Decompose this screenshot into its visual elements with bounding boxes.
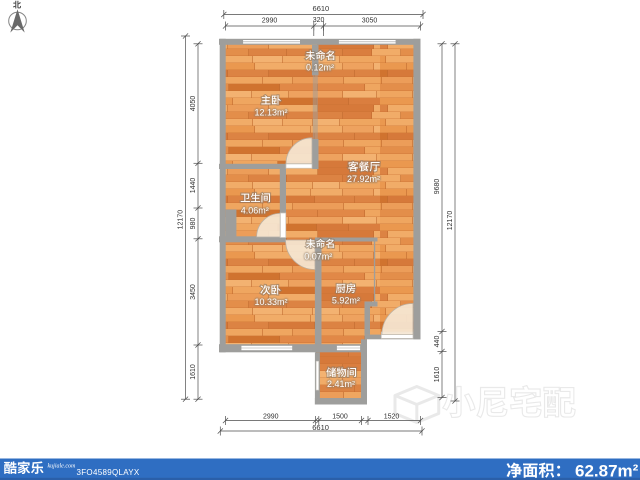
svg-text:1520: 1520 <box>384 414 400 421</box>
svg-text:980: 980 <box>190 218 197 230</box>
svg-text:10.33m²: 10.33m² <box>254 297 287 307</box>
svg-text:kujiale.com: kujiale.com <box>48 464 76 470</box>
svg-text:2.41m²: 2.41m² <box>327 379 355 389</box>
svg-text:3450: 3450 <box>190 284 197 300</box>
svg-text:6610: 6610 <box>313 4 330 13</box>
svg-text:4050: 4050 <box>190 96 197 112</box>
svg-text:1440: 1440 <box>190 178 197 194</box>
svg-text:9680: 9680 <box>434 179 441 195</box>
svg-text:2990: 2990 <box>263 414 279 421</box>
svg-text:12170: 12170 <box>178 210 185 230</box>
svg-text:12170: 12170 <box>447 211 454 231</box>
svg-text:62.87m²: 62.87m² <box>575 462 639 480</box>
svg-text:0.07m²: 0.07m² <box>304 252 332 262</box>
svg-text:440: 440 <box>434 336 441 348</box>
svg-text:12.13m²: 12.13m² <box>254 107 287 117</box>
svg-text:1500: 1500 <box>332 414 348 421</box>
svg-text:1610: 1610 <box>434 367 441 383</box>
svg-text:4.06m²: 4.06m² <box>241 206 269 216</box>
svg-text:320: 320 <box>313 17 325 24</box>
svg-text:3FO4589QLAYX: 3FO4589QLAYX <box>77 468 140 477</box>
svg-text:0.12m²: 0.12m² <box>306 63 334 73</box>
svg-text:3050: 3050 <box>362 17 378 24</box>
svg-text:1610: 1610 <box>190 364 197 380</box>
svg-text:6610: 6610 <box>312 423 329 432</box>
svg-text:5.92m²: 5.92m² <box>332 296 360 306</box>
svg-text:2990: 2990 <box>262 17 278 24</box>
svg-text:27.92m²: 27.92m² <box>347 174 380 184</box>
